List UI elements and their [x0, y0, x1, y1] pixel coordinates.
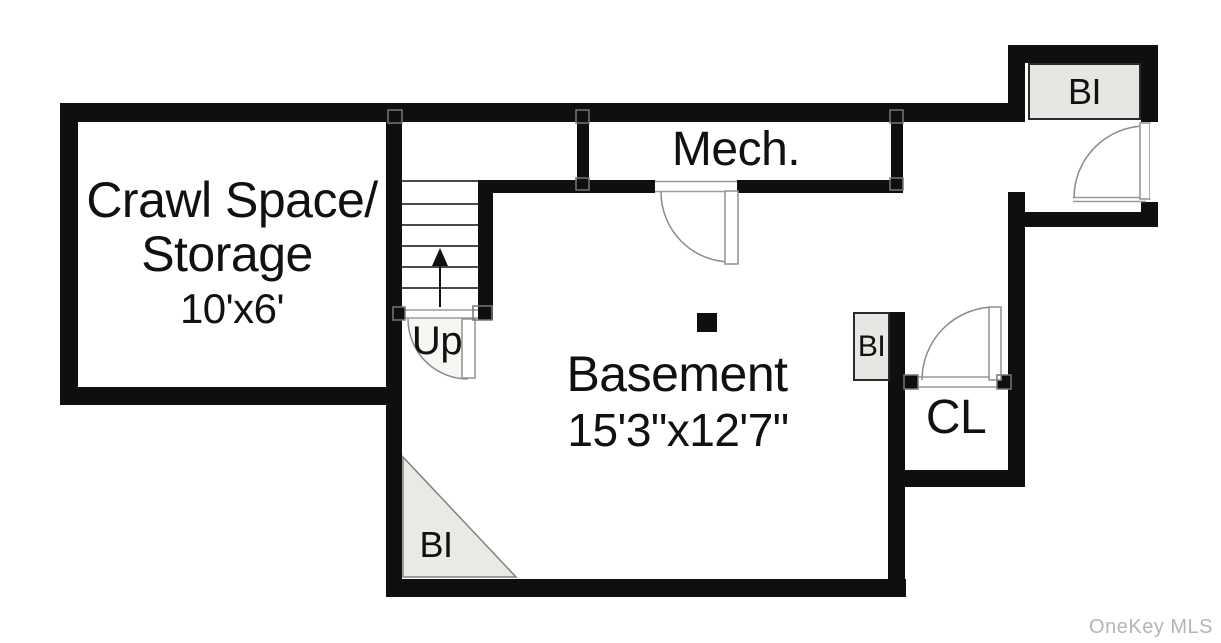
built-in-corner-label: BI [419, 527, 452, 563]
crawl-space-label-line2: Storage [141, 229, 313, 279]
alcove-door-icon [1073, 123, 1157, 202]
crawl-space-label-line1: Crawl Space/ [86, 175, 377, 225]
watermark: OneKey MLS [1089, 616, 1213, 639]
basement-dimensions: 15'3"x12'7" [567, 407, 788, 453]
floor-plan: BI BI [0, 0, 1221, 643]
mech-door-icon [655, 182, 738, 265]
basement-label: Basement [566, 349, 787, 399]
closet-label: CL [926, 394, 986, 442]
stairs-up-label: Up [412, 321, 462, 361]
mech-room-label: Mech. [672, 126, 800, 174]
crawl-space-dimensions: 10'x6' [180, 288, 284, 330]
stairs-up-arrow-icon [432, 248, 448, 307]
closet-door-icon [918, 307, 1001, 387]
